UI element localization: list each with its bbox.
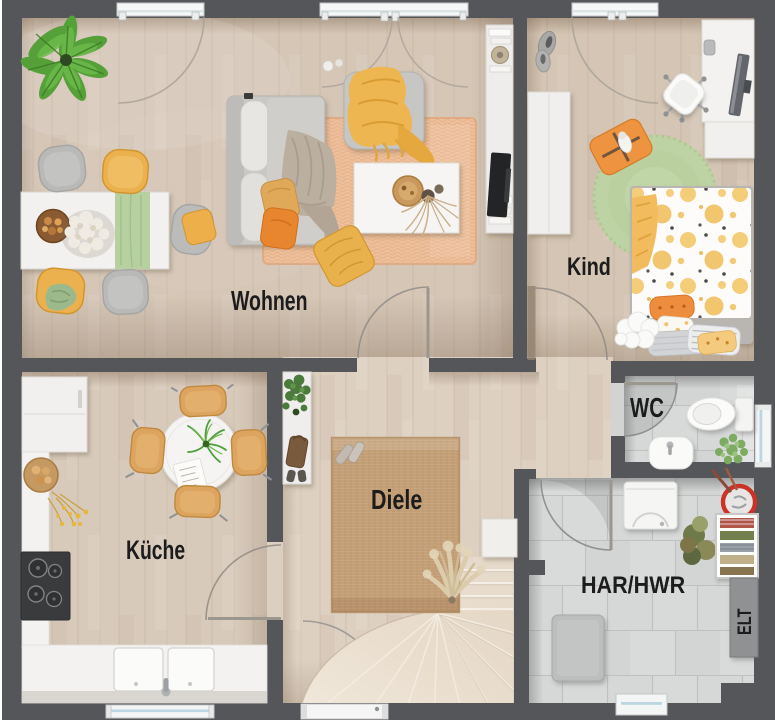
svg-text:Küche: Küche bbox=[126, 535, 185, 565]
svg-text:HAR/HWR: HAR/HWR bbox=[581, 571, 685, 599]
svg-text:Diele: Diele bbox=[371, 486, 422, 516]
svg-text:Kind: Kind bbox=[567, 253, 611, 281]
svg-text:ELT: ELT bbox=[733, 608, 756, 635]
svg-text:Wohnen: Wohnen bbox=[231, 286, 308, 317]
svg-text:WC: WC bbox=[630, 393, 664, 424]
